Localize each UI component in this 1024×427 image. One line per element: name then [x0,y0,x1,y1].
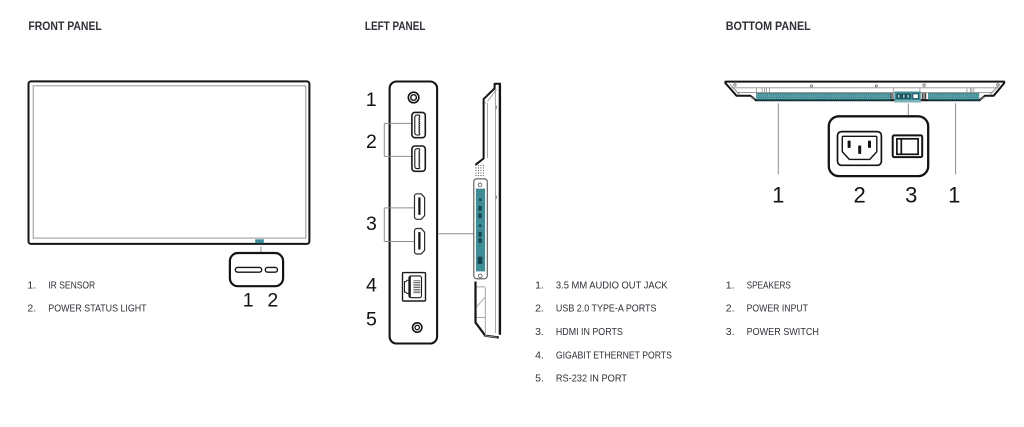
svg-text:IR SENSOR: IR SENSOR [48,279,95,291]
svg-text:1.: 1. [535,279,544,291]
svg-text:3.5 MM AUDIO OUT JACK: 3.5 MM AUDIO OUT JACK [556,279,668,291]
svg-text:3.: 3. [726,326,735,338]
svg-text:HDMI IN PORTS: HDMI IN PORTS [556,326,623,338]
svg-text:RS-232 IN PORT: RS-232 IN PORT [556,373,628,385]
svg-text:5.: 5. [535,373,544,385]
svg-text:2.: 2. [27,303,36,315]
svg-text:2.: 2. [726,303,735,315]
svg-text:2.: 2. [535,303,544,315]
svg-text:USB 2.0 TYPE-A PORTS: USB 2.0 TYPE-A PORTS [556,303,657,315]
svg-text:POWER INPUT: POWER INPUT [747,303,809,315]
svg-text:POWER STATUS LIGHT: POWER STATUS LIGHT [48,303,147,315]
svg-text:3: 3 [905,182,917,207]
svg-text:5: 5 [366,309,377,331]
svg-text:1: 1 [243,289,254,311]
svg-text:1: 1 [948,182,960,207]
svg-text:2: 2 [853,182,865,207]
svg-text:BOTTOM PANEL: BOTTOM PANEL [726,19,811,33]
svg-text:1: 1 [366,89,377,111]
svg-text:3.: 3. [535,326,544,338]
svg-text:3: 3 [366,213,377,235]
svg-text:LEFT PANEL: LEFT PANEL [365,19,426,33]
svg-text:FRONT PANEL: FRONT PANEL [28,19,101,33]
svg-text:2: 2 [366,131,377,153]
svg-text:1.: 1. [726,279,735,291]
svg-text:2: 2 [267,289,278,311]
svg-text:GIGABIT ETHERNET PORTS: GIGABIT ETHERNET PORTS [556,349,672,361]
svg-text:POWER SWITCH: POWER SWITCH [747,326,819,338]
svg-text:4: 4 [366,274,377,296]
svg-text:SPEAKERS: SPEAKERS [747,279,791,291]
svg-text:4.: 4. [535,349,544,361]
svg-text:1.: 1. [27,279,36,291]
svg-text:1: 1 [772,182,784,207]
